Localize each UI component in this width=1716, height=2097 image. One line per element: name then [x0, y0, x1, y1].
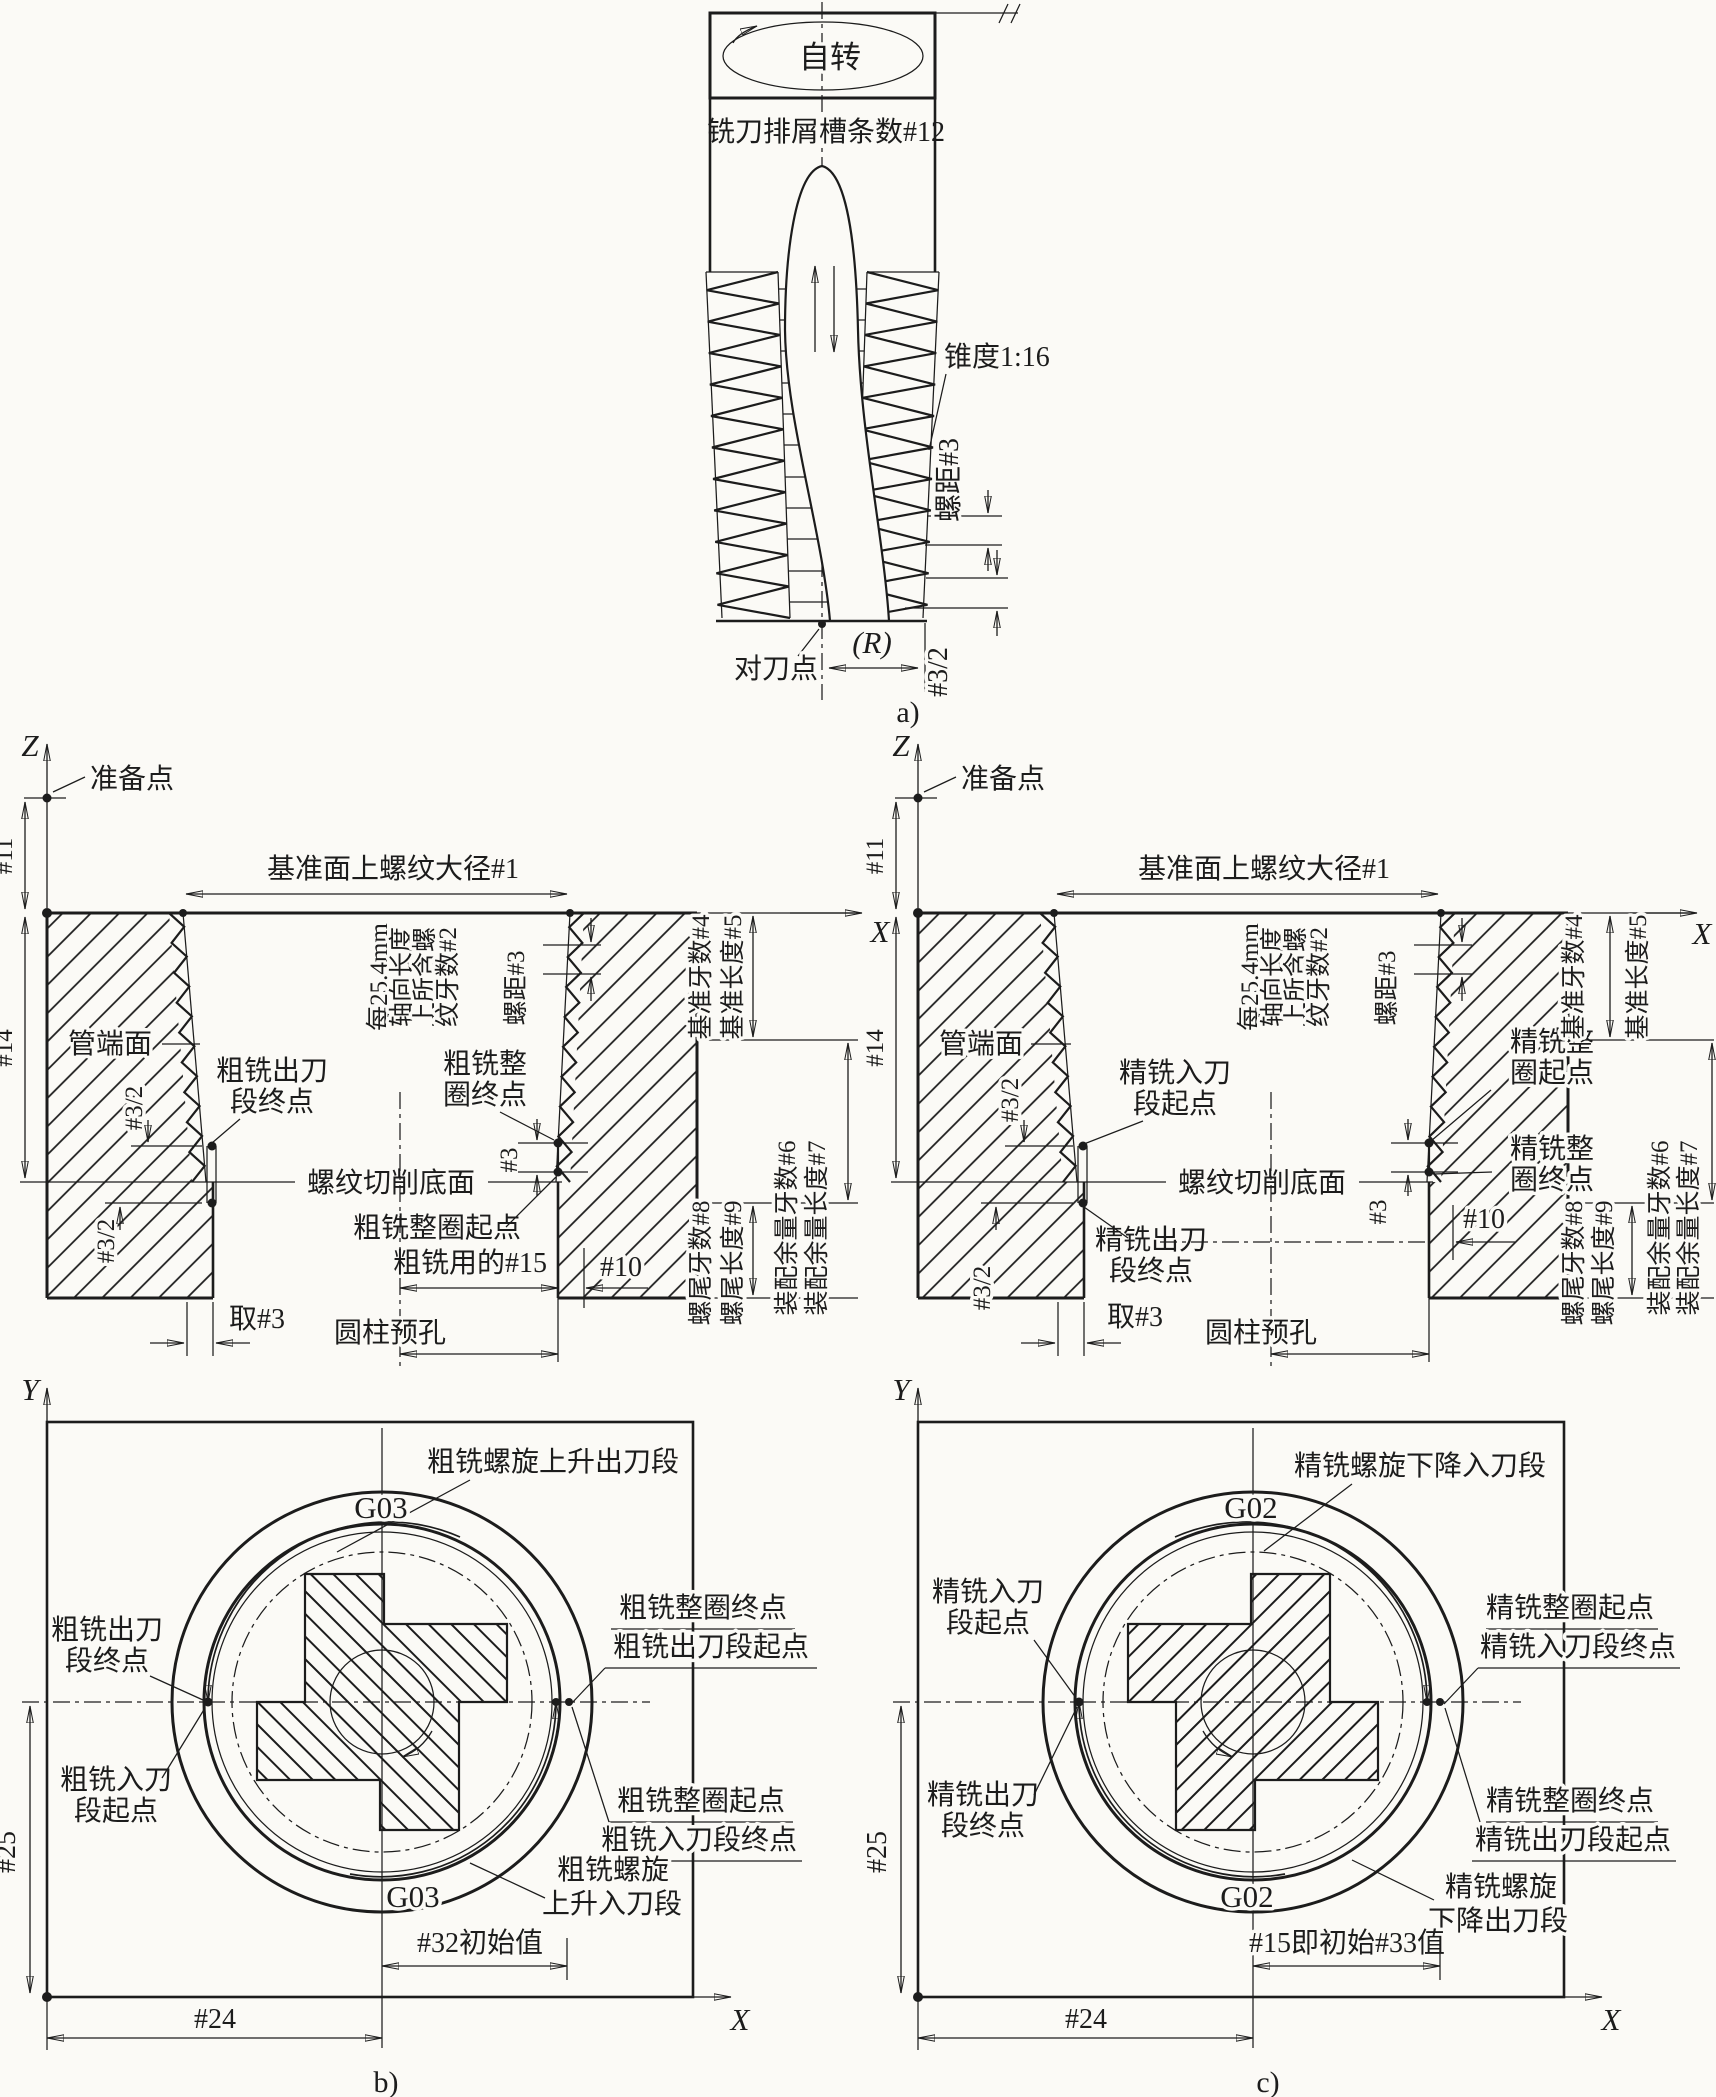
taper-label: 锥度1:16	[944, 341, 1050, 373]
c-x-label: X	[1600, 2002, 1622, 2037]
b-dim25-label: #25	[0, 1831, 22, 1873]
c-helix-entry-label: 精铣螺旋下降入刀段	[1294, 1450, 1546, 1482]
b-core-hatch	[257, 1574, 507, 1830]
c-pipe-end-label: 管端面	[939, 1028, 1023, 1060]
circle-c-plan-view: Y 精铣螺旋下降入刀段 G02 G02 精铣入刀 段起点 精铣出刀 段终点 精铣…	[862, 1372, 1680, 2097]
b-entry-start-l2: 段起点	[74, 1795, 158, 1827]
b-right-dimensions: 基准牙数#4 基准长度#5 螺尾牙数#8 螺尾长度#9 装配余量牙数#6 装配余…	[687, 914, 858, 1326]
svg-text:纹牙数#2: 纹牙数#2	[434, 927, 462, 1027]
c-helix-exit-l2: 下降出刀段	[1428, 1905, 1568, 1937]
svg-text:粗铣整圈终点: 粗铣整圈终点	[619, 1592, 787, 1624]
pitch-label: 螺距#3	[933, 438, 965, 522]
svg-text:精铣整圈起点: 精铣整圈起点	[1486, 1592, 1654, 1624]
flutes-label: 铣刀排屑槽条数#12	[707, 116, 945, 148]
c-init15-label: #15即初始#33值	[1249, 1927, 1445, 1959]
b-helix-entry-l2: 上升入刀段	[542, 1888, 682, 1920]
c-dim24-label: #24	[1065, 2004, 1107, 2035]
b-y-label: Y	[21, 1372, 41, 1407]
svg-text:取#3: 取#3	[229, 1304, 285, 1335]
b-helix-entry-l1: 粗铣螺旋	[557, 1854, 669, 1886]
c-right-path-point	[1423, 1698, 1431, 1706]
c-entry-start-point	[1079, 1142, 1088, 1151]
tool-body	[706, 98, 939, 621]
c-dim25-label: #25	[862, 1831, 893, 1873]
b-prep-leader	[53, 777, 85, 792]
c-ref-len-label: 基准长度#5	[1624, 914, 1652, 1039]
b-dim10-label: #10	[600, 1252, 642, 1283]
tool-setting-point	[818, 620, 826, 628]
c-exit-end-l2: 段终点	[1109, 1255, 1193, 1287]
svg-text:精铣入刀段终点: 精铣入刀段终点	[1480, 1631, 1676, 1663]
tool-point-leader	[798, 629, 819, 656]
b-left-path-point	[204, 1698, 213, 1707]
pitch-dimension: 螺距#3	[925, 438, 1002, 571]
half-pitch-label: #3/2	[923, 647, 954, 697]
c-z-label: Z	[892, 728, 910, 763]
svg-text:#3/2: #3/2	[121, 1086, 148, 1130]
b-g03-top: G03	[354, 1490, 407, 1525]
c-entry-start-l2: 段起点	[1133, 1088, 1217, 1120]
c-major-dia-label: 基准面上螺纹大径#1	[1138, 853, 1390, 885]
c-tail-len-label: 螺尾长度#9	[1590, 1200, 1618, 1325]
b-exit-end-l2: 段终点	[230, 1086, 314, 1118]
b-full-end-l1: 粗铣整	[443, 1048, 527, 1080]
c-origin-point	[913, 908, 923, 918]
svg-text:取#3: 取#3	[1107, 1302, 1163, 1333]
b-z-label: Z	[21, 728, 39, 763]
c-helix-exit-l1: 精铣螺旋	[1445, 1871, 1557, 1903]
b-exit-end-point	[208, 1142, 217, 1151]
c-entry-start-l1: 精铣入刀	[1119, 1057, 1231, 1089]
panel-a-tool-view: 自转 铣刀排屑槽条数#12 对刀点 (R) 锥度1:16	[706, 2, 1050, 729]
c-y-label: Y	[892, 1372, 912, 1407]
c-exit-end-l2: 段终点	[941, 1810, 1025, 1842]
b-exit-end-l1: 粗铣出刀	[216, 1055, 328, 1087]
b-rough15-label: 粗铣用的#15	[393, 1247, 547, 1279]
caption-c: c)	[1256, 2066, 1279, 2097]
svg-text:#3/2: #3/2	[93, 1219, 120, 1263]
section-b-axial-view: Z 准备点 #11 #14 X 基准面上螺纹大径#1 每25.4mm 轴向长度 …	[0, 728, 891, 1368]
svg-text:粗铣出刀段起点: 粗铣出刀段起点	[613, 1631, 809, 1663]
c-exit-end-l1: 精铣出刀	[1095, 1224, 1207, 1256]
c-entry-start-l2: 段起点	[946, 1607, 1030, 1639]
svg-text:精铣整圈终点: 精铣整圈终点	[1486, 1785, 1654, 1817]
svg-text:粗铣整圈起点: 粗铣整圈起点	[617, 1785, 785, 1817]
svg-text:#3: #3	[1365, 1200, 1392, 1225]
section-c-axial-view: Z 准备点 #11 #14 X 基准面上螺纹大径#1 每25.4mm 轴向长度 …	[862, 728, 1714, 1368]
c-exit-end-point	[1079, 1199, 1088, 1208]
b-right-path-point	[552, 1698, 560, 1706]
c-fit-len-label: 装配余量长度#7	[1675, 1140, 1703, 1315]
svg-text:精铣出刀段起点: 精铣出刀段起点	[1475, 1824, 1671, 1856]
b-entry-start-l1: 粗铣入刀	[60, 1764, 172, 1796]
svg-text:圆柱预孔: 圆柱预孔	[334, 1317, 446, 1349]
b-ref-teeth-label: 基准牙数#4	[687, 914, 715, 1040]
c-core-hatch	[1128, 1574, 1378, 1830]
b-right-lower-labels: 粗铣整圈起点 粗铣入刀段终点	[572, 1707, 802, 1861]
radius-label: (R)	[852, 625, 892, 660]
b-fit-teeth-label: 装配余量牙数#6	[773, 1140, 801, 1315]
b-dim24-label: #24	[194, 2004, 236, 2035]
svg-text:#3: #3	[496, 1148, 523, 1173]
c-tail-teeth-label: 螺尾牙数#8	[1560, 1200, 1588, 1325]
b-entry-start-point	[208, 1199, 217, 1208]
b-fit-len-label: 装配余量长度#7	[803, 1140, 831, 1315]
b-x-label: X	[869, 914, 891, 949]
b-take3-dim: 取#3	[150, 1302, 285, 1356]
c-dim10-label: #10	[1463, 1204, 1505, 1235]
svg-text:#3/2: #3/2	[997, 1078, 1024, 1122]
c-entry-start-l1: 精铣入刀	[932, 1576, 1044, 1608]
c-g02-bottom: G02	[1220, 1879, 1273, 1914]
tool-point-label: 对刀点	[734, 653, 818, 685]
b-bottom-face-label: 螺纹切削底面	[307, 1167, 475, 1199]
b-g03-bottom: G03	[386, 1879, 439, 1914]
c-prep-point	[914, 794, 923, 803]
b-major-dia-label: 基准面上螺纹大径#1	[267, 853, 519, 885]
b-prep-point	[43, 794, 52, 803]
b-init32-label: #32初始值	[417, 1927, 543, 1959]
svg-text:螺距#3: 螺距#3	[1373, 950, 1401, 1025]
svg-text:#3/2: #3/2	[969, 1266, 996, 1310]
b-exit-end-l1: 粗铣出刀	[51, 1614, 163, 1646]
c-dim11-label: #11	[862, 838, 889, 875]
c-x-label: X	[1691, 916, 1713, 951]
c-g02-top: G02	[1224, 1490, 1277, 1525]
b-dim11-label: #11	[0, 838, 18, 875]
b-x-label: X	[729, 2002, 751, 2037]
pipe-thread-milling-figure: { "panel_a": { "caption": "a)", "rotatio…	[0, 0, 1716, 2097]
svg-text:纹牙数#2: 纹牙数#2	[1305, 927, 1333, 1027]
b-dim14-label: #14	[0, 1029, 18, 1067]
c-right-dimensions: 基准牙数#4 基准长度#5 螺尾牙数#8 螺尾长度#9 装配余量牙数#6 装配余…	[1560, 914, 1714, 1326]
c-right-lower-labels: 精铣整圈终点 精铣出刀段起点	[1445, 1708, 1676, 1861]
c-full-start-l2: 圈起点	[1510, 1058, 1594, 1089]
c-teeth-per-inch-label: 每25.4mm 轴向长度 上所含螺 纹牙数#2	[1236, 923, 1333, 1031]
c-left-path-point	[1075, 1698, 1084, 1707]
b-full-start-label: 粗铣整圈起点	[353, 1212, 521, 1244]
b-ref-len-label: 基准长度#5	[719, 914, 747, 1039]
svg-text:圆柱预孔: 圆柱预孔	[1205, 1317, 1317, 1349]
b-exit-end-l2: 段终点	[65, 1645, 149, 1677]
circle-b-plan-view: Y 粗铣螺旋上升出刀段 G03 G03 粗铣出刀 段终点 粗铣入刀 段起点 粗铣…	[0, 1372, 817, 2097]
c-dim14-label: #14	[862, 1029, 889, 1067]
svg-text:螺距#3: 螺距#3	[502, 950, 530, 1025]
figure-canvas: 自转 铣刀排屑槽条数#12 对刀点 (R) 锥度1:16	[0, 0, 1716, 2097]
caption-a: a)	[896, 696, 919, 729]
c-full-end-l1: 精铣整	[1510, 1133, 1594, 1165]
b-teeth-per-inch-label: 每25.4mm 轴向长度 上所含螺 纹牙数#2	[365, 923, 462, 1031]
b-helix-exit-label: 粗铣螺旋上升出刀段	[427, 1446, 679, 1478]
c-prep-label: 准备点	[961, 763, 1045, 795]
caption-b: b)	[374, 2066, 399, 2097]
c-exit-end-l1: 精铣出刀	[927, 1779, 1039, 1811]
c-right-upper-labels: 精铣整圈起点 精铣入刀段终点	[1444, 1592, 1680, 1704]
b-origin-point	[42, 908, 52, 918]
b-tail-len-label: 螺尾长度#9	[719, 1200, 747, 1325]
c-prehole-dim: 圆柱预孔	[1205, 1092, 1429, 1368]
c-bottom-face-label: 螺纹切削底面	[1178, 1167, 1346, 1199]
b-pipe-end-label: 管端面	[68, 1028, 152, 1060]
b-full-end-l2: 圈终点	[443, 1079, 527, 1111]
c-fit-teeth-label: 装配余量牙数#6	[1646, 1140, 1674, 1315]
c-ref-teeth-label: 基准牙数#4	[1560, 914, 1588, 1040]
svg-text:粗铣入刀段终点: 粗铣入刀段终点	[601, 1824, 797, 1856]
rotation-label: 自转	[799, 40, 861, 75]
b-prep-label: 准备点	[90, 763, 174, 795]
c-full-end-l2: 圈终点	[1510, 1164, 1594, 1196]
c-take3-dim: 取#3	[1021, 1302, 1163, 1356]
b-tail-teeth-label: 螺尾牙数#8	[687, 1200, 715, 1325]
chip-flute	[785, 166, 889, 621]
